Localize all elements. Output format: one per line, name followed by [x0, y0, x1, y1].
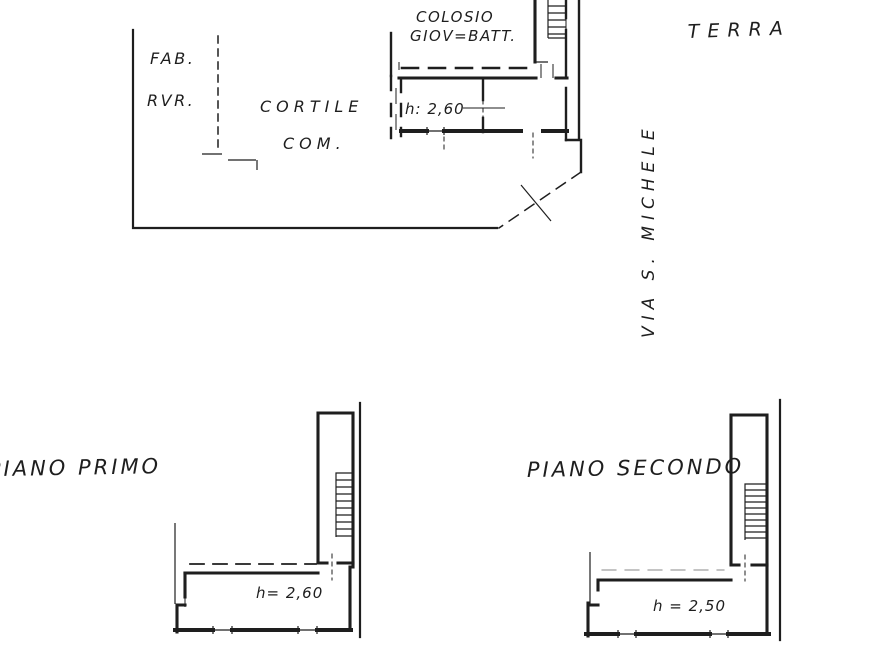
courtyard-step [202, 154, 257, 170]
floor-plan-drawing: COLOSIO GIOV=BATT. FAB. RVR. CORTILE COM… [0, 0, 893, 670]
adjacent-building-label-line2: RVR. [147, 91, 195, 110]
bottom-door-dashes [444, 133, 533, 158]
adjacent-building-label-line1: FAB. [150, 49, 195, 68]
second-floor-room-top-wall [598, 580, 731, 590]
second-floor-height-label: h = 2,50 [653, 597, 726, 615]
street-boundary-diagonal [499, 172, 581, 228]
first-floor-plan: PIANO PRIMO h= 2,60 [0, 403, 360, 637]
second-floor-left-wall [588, 603, 598, 636]
ground-room-height-label: h: 2,60 [405, 100, 465, 118]
neighbor-name-line1: COLOSIO [416, 8, 494, 26]
room-bottom-window [427, 127, 444, 135]
neighbor-name-line2: GIOV=BATT. [410, 27, 516, 45]
gate-stroke [521, 185, 551, 221]
ground-floor-plan: COLOSIO GIOV=BATT. FAB. RVR. CORTILE COM… [133, 0, 791, 338]
first-floor-height-label: h= 2,60 [256, 584, 323, 602]
second-floor-wing-walls [731, 415, 767, 634]
street-wall-outer [566, 0, 581, 172]
street-name-label: VIA S. MICHELE [639, 123, 659, 338]
first-floor-title: PIANO PRIMO [0, 454, 161, 481]
first-floor-left-wall [177, 573, 185, 632]
stairwell-steps [535, 0, 566, 62]
top-door-ticks [399, 62, 553, 78]
courtyard-label-line2: COM. [283, 134, 346, 153]
first-floor-stairs [336, 473, 353, 537]
second-floor-plan: PIANO SECONDO h = 2,50 [527, 400, 780, 640]
courtyard-label-line1: CORTILE [260, 97, 363, 116]
second-floor-title: PIANO SECONDO [527, 454, 745, 482]
floor-plan-document: COLOSIO GIOV=BATT. FAB. RVR. CORTILE COM… [0, 0, 893, 670]
ground-floor-title: TERRA [687, 17, 791, 43]
second-floor-stairs [745, 484, 767, 540]
